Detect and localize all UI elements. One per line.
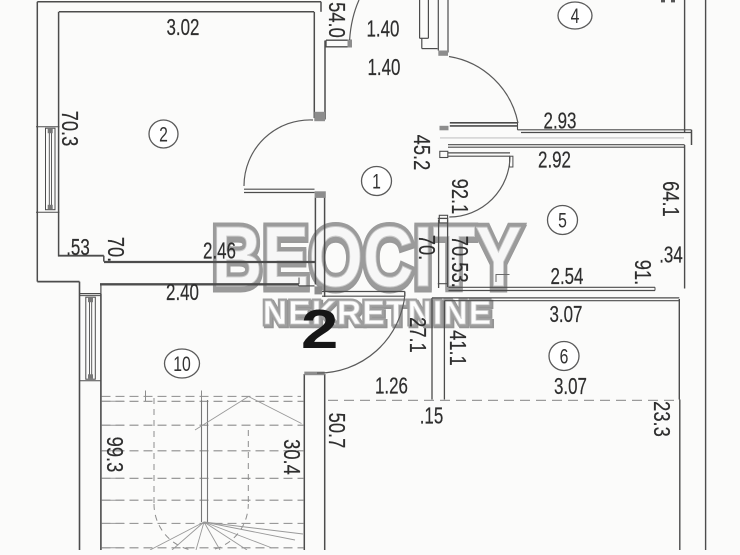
svg-text:53.: 53. [446,262,472,287]
svg-text:64.1: 64.1 [657,181,683,217]
svg-text:5: 5 [558,208,567,232]
svg-text:10: 10 [173,352,191,376]
svg-text:2: 2 [301,298,338,360]
svg-text:1.40: 1.40 [368,54,401,80]
svg-text:92.1: 92.1 [446,179,472,215]
svg-text:70.: 70. [102,237,128,262]
svg-text:70.: 70. [446,236,472,261]
svg-text:70.: 70. [413,235,439,260]
svg-text:3.07: 3.07 [550,301,583,327]
svg-text:27.1: 27.1 [404,317,430,353]
svg-text:.15: .15 [420,403,444,429]
svg-text:3.02: 3.02 [167,14,200,40]
svg-text:1.26: 1.26 [375,373,408,399]
svg-text:4: 4 [571,4,580,28]
svg-text:.53: .53 [66,234,90,260]
svg-text:23.3: 23.3 [648,401,674,437]
svg-text:41.1: 41.1 [444,330,470,366]
svg-text:99.3: 99.3 [101,437,127,473]
svg-text:91.: 91. [629,260,655,285]
svg-text:2.93: 2.93 [544,108,577,134]
svg-text:NEKRETNINE: NEKRETNINE [263,294,493,331]
svg-text:3.07: 3.07 [554,373,587,399]
svg-text:1: 1 [372,169,381,193]
svg-text:1.40: 1.40 [367,16,400,42]
svg-text:30.4: 30.4 [278,439,304,475]
svg-text:6: 6 [560,344,569,368]
svg-text:50.7: 50.7 [323,413,349,449]
svg-text:2.46: 2.46 [203,238,236,264]
svg-text:.34: .34 [659,242,683,268]
svg-text:2.54: 2.54 [551,263,584,289]
svg-text:54.0: 54.0 [323,2,349,38]
svg-text:2: 2 [159,122,168,146]
svg-text:2.40: 2.40 [166,279,199,305]
svg-text:45.2: 45.2 [408,135,434,171]
svg-text:2.92: 2.92 [538,147,571,173]
svg-text:70.3: 70.3 [56,111,82,147]
